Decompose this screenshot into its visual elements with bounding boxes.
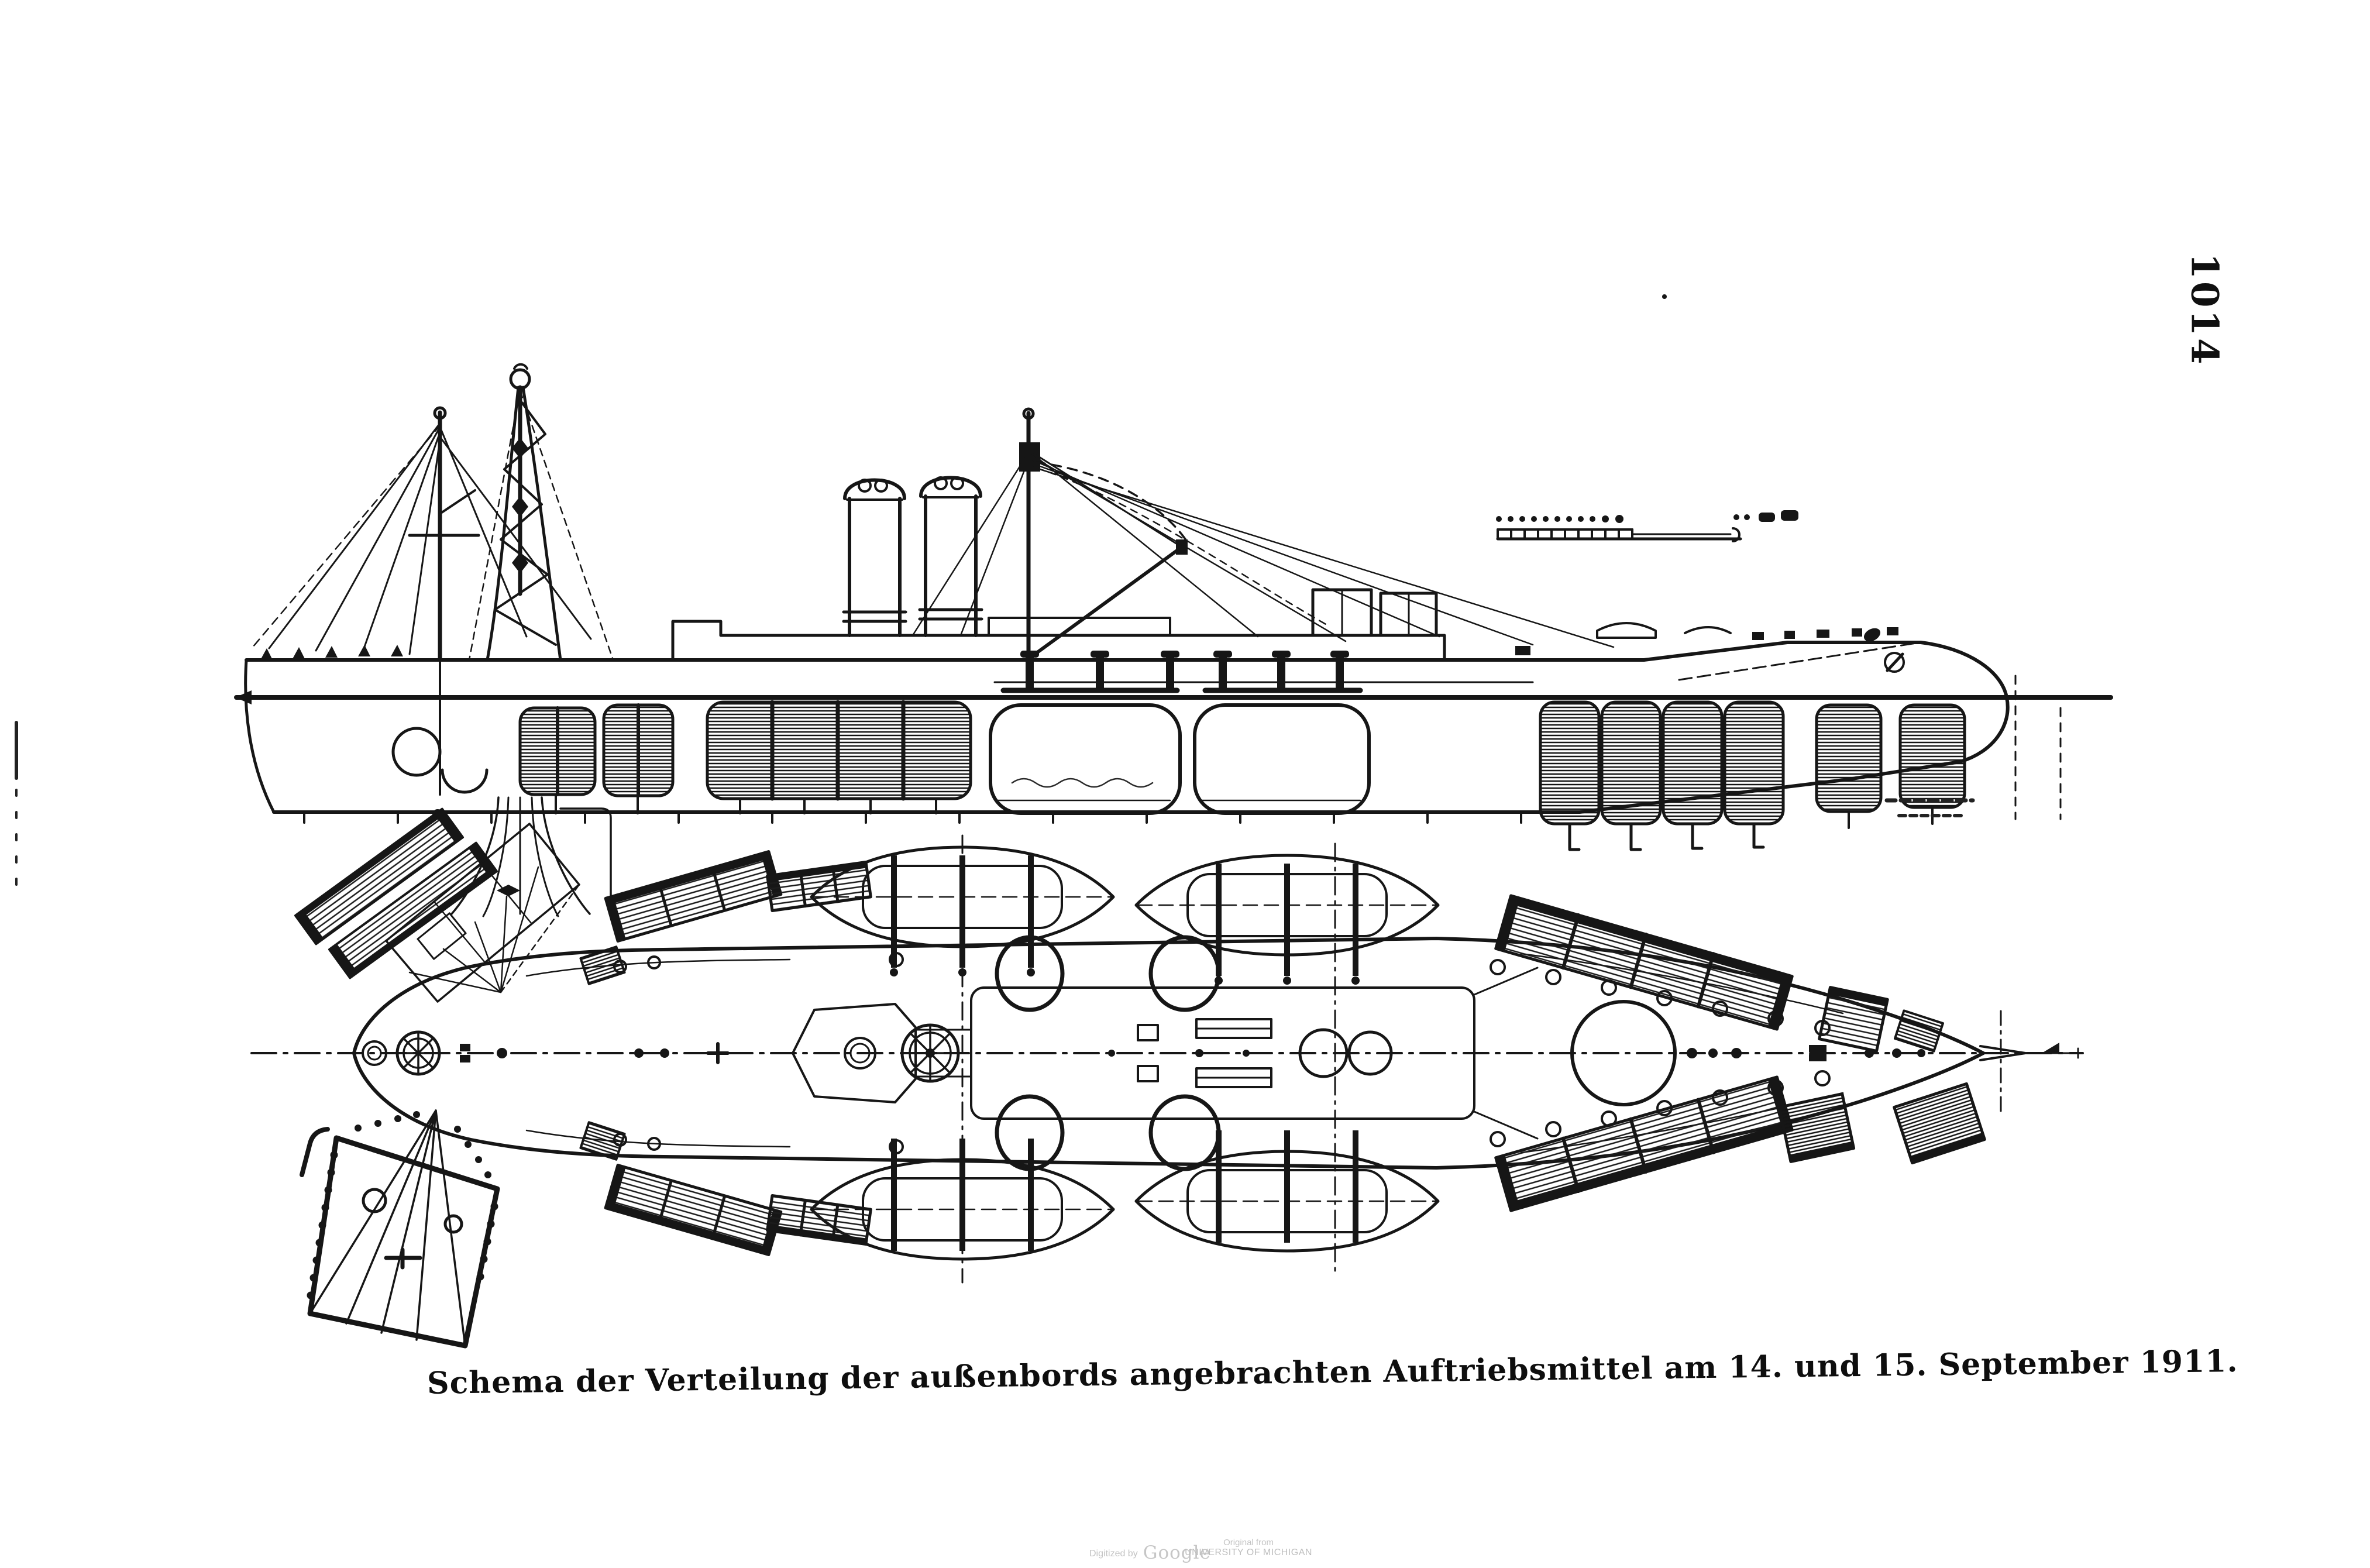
superstructure-profile [673,590,1898,660]
source-watermark: Original from UNIVERSITY OF MICHIGAN [1184,1538,1313,1558]
buoyancy-rafts-plan [295,809,1984,1255]
digitized-by-label: Digitized by [1089,1549,1138,1559]
mainmast-derrick [913,409,1614,673]
original-from-label: Original from [1184,1538,1313,1548]
plan-view [252,809,2083,1346]
buoyancy-pontoons-side [520,651,1965,850]
institution-label: UNIVERSITY OF MICHIGAN [1184,1548,1313,1558]
side-elevation-view [235,294,2111,916]
page-number: 1014 [2183,245,2227,376]
scale-bar [1496,294,1798,541]
towed-raft-lower [302,1110,498,1346]
scanned-book-page: { "page": { "number": "1014", "paper_col… [0,0,2370,1568]
ship-buoyancy-schematic [0,0,2370,1568]
lattice-mast [469,365,613,660]
funnels [844,477,982,635]
